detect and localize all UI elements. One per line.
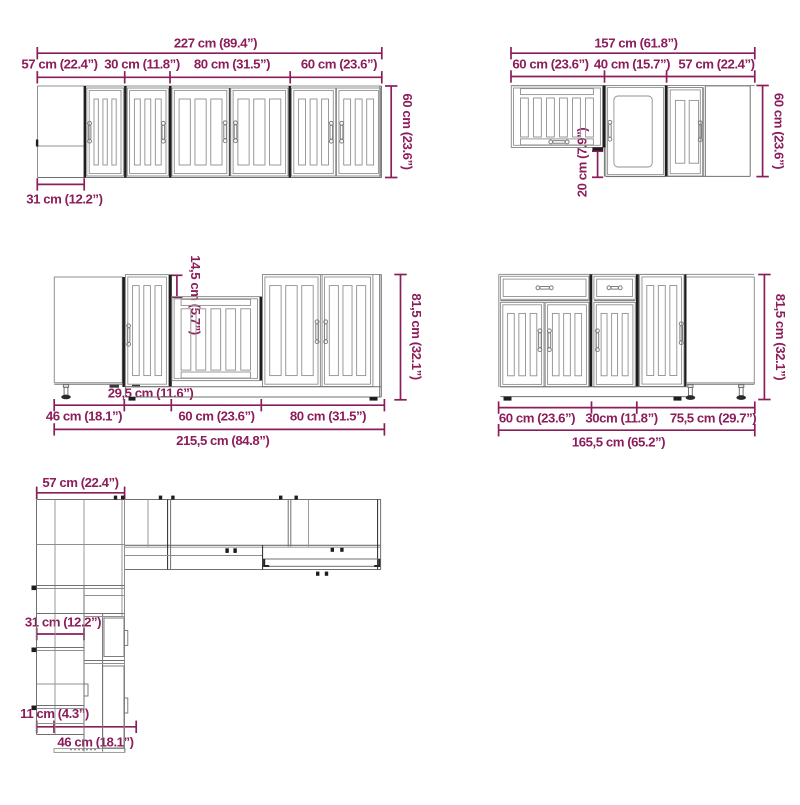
svg-text:20 cm (7.9”): 20 cm (7.9”) <box>574 128 589 197</box>
svg-text:60 cm (23.6”): 60 cm (23.6”) <box>400 93 415 169</box>
svg-text:81,5 cm (32.1”): 81,5 cm (32.1”) <box>773 294 788 380</box>
svg-text:40 cm (15.7”): 40 cm (15.7”) <box>594 57 670 72</box>
svg-text:215,5 cm (84.8”): 215,5 cm (84.8”) <box>176 433 269 448</box>
svg-text:46 cm (18.1”): 46 cm (18.1”) <box>57 734 133 749</box>
svg-text:80 cm (31.5”): 80 cm (31.5”) <box>290 409 366 424</box>
svg-text:29,5 cm (11.6”): 29,5 cm (11.6”) <box>108 385 194 400</box>
svg-text:57 cm (22.4”): 57 cm (22.4”) <box>21 57 97 72</box>
svg-text:227 cm (89.4”): 227 cm (89.4”) <box>174 35 257 50</box>
svg-text:30cm (11.8”): 30cm (11.8”) <box>585 410 657 425</box>
svg-text:80 cm (31.5”): 80 cm (31.5”) <box>194 57 270 72</box>
svg-text:46 cm (18.1”): 46 cm (18.1”) <box>46 409 122 424</box>
svg-text:57 cm (22.4”): 57 cm (22.4”) <box>678 57 754 72</box>
svg-text:57 cm (22.4”): 57 cm (22.4”) <box>42 475 118 490</box>
svg-text:60 cm (23.6”): 60 cm (23.6”) <box>771 93 786 169</box>
svg-text:14,5 cm (5.7”): 14,5 cm (5.7”) <box>188 255 203 335</box>
svg-text:30 cm (11.8”): 30 cm (11.8”) <box>104 57 180 72</box>
svg-text:60 cm (23.6”): 60 cm (23.6”) <box>301 57 377 72</box>
svg-text:165,5 cm (65.2”): 165,5 cm (65.2”) <box>572 434 665 449</box>
svg-text:75,5 cm (29.7”): 75,5 cm (29.7”) <box>670 410 756 425</box>
svg-text:81,5 cm (32.1”): 81,5 cm (32.1”) <box>409 293 424 379</box>
svg-text:157 cm (61.8”): 157 cm (61.8”) <box>594 35 677 50</box>
svg-text:31 cm (12.2”): 31 cm (12.2”) <box>26 191 102 206</box>
svg-text:60 cm (23.6”): 60 cm (23.6”) <box>512 57 588 72</box>
svg-text:60 cm (23.6”): 60 cm (23.6”) <box>499 410 575 425</box>
svg-text:60 cm (23.6”): 60 cm (23.6”) <box>178 409 254 424</box>
